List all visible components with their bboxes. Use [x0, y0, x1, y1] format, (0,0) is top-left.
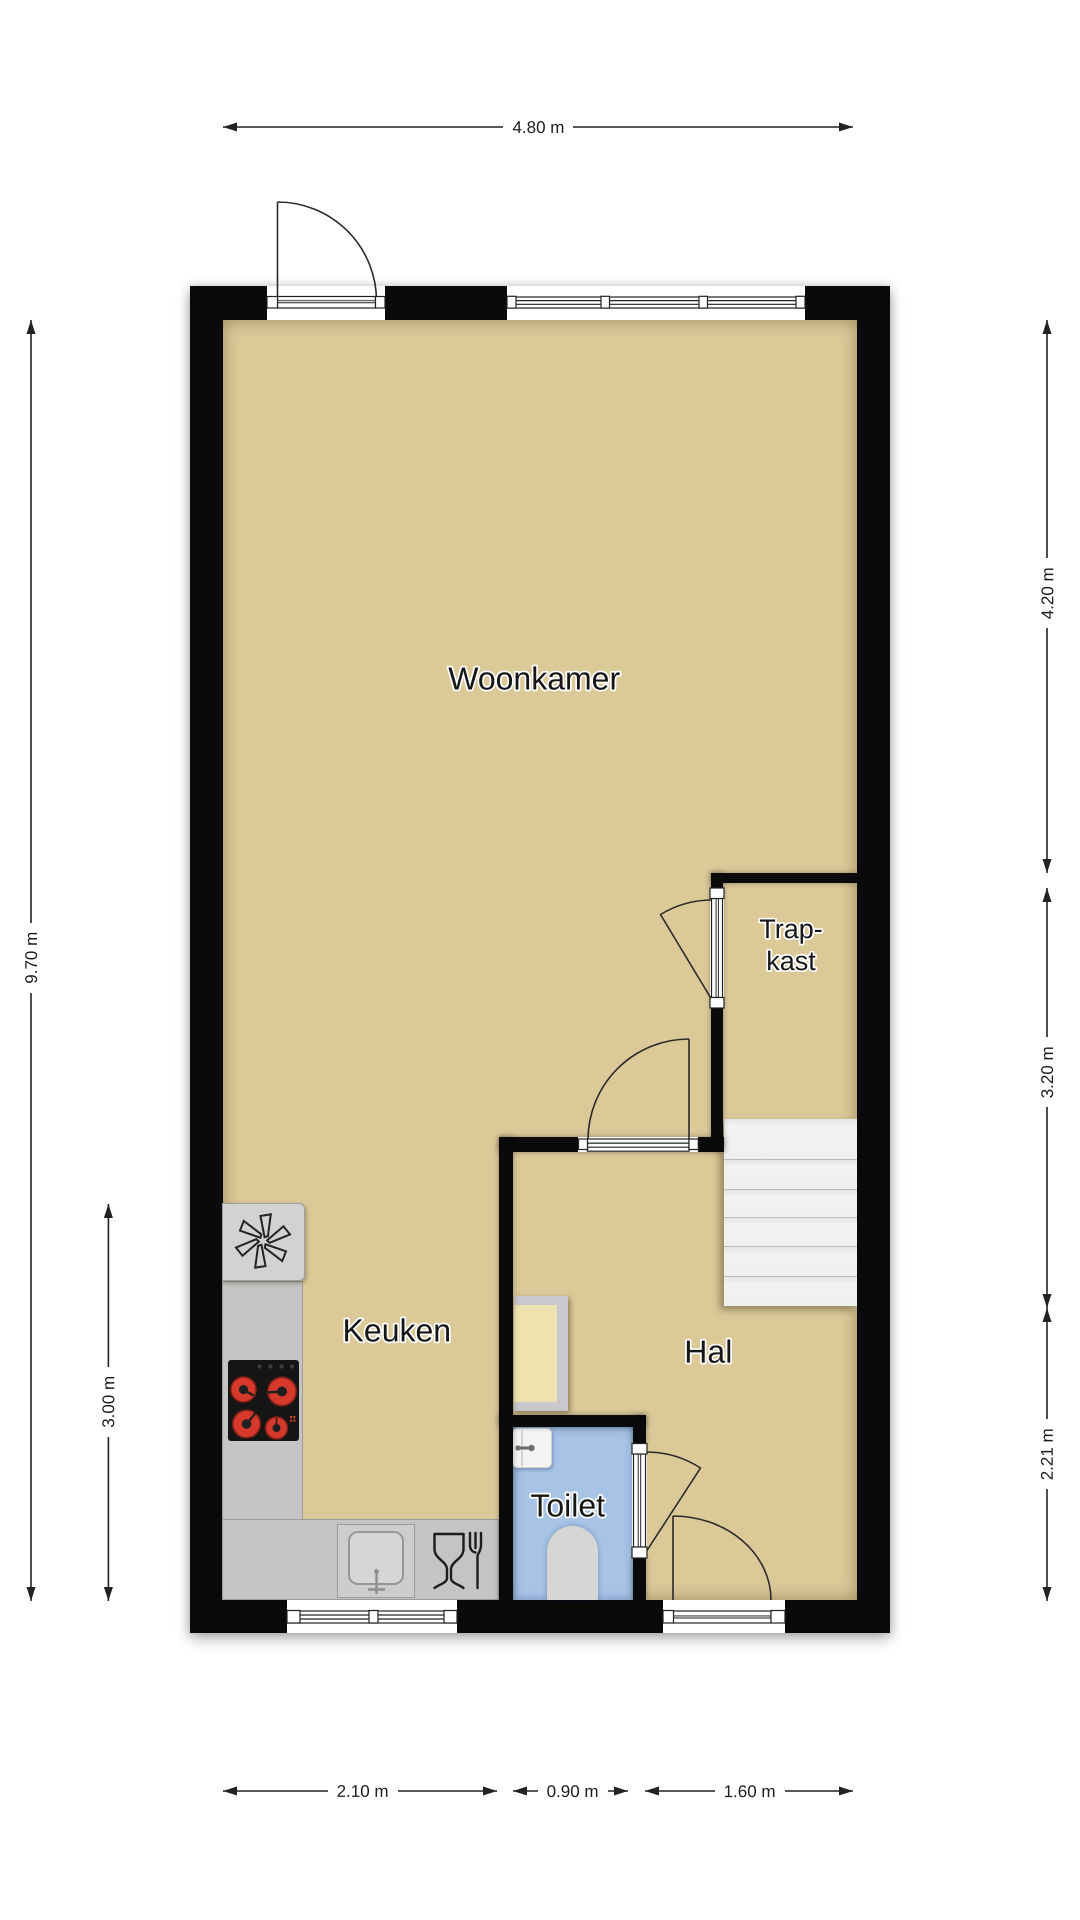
svg-text:3.00 m: 3.00 m [99, 1376, 118, 1428]
svg-text:1.60 m: 1.60 m [724, 1782, 776, 1801]
svg-text:Woonkamer: Woonkamer [448, 660, 620, 696]
svg-text:3.20 m: 3.20 m [1038, 1046, 1057, 1098]
svg-text:2.10 m: 2.10 m [337, 1782, 389, 1801]
svg-text:9.70 m: 9.70 m [22, 932, 41, 984]
svg-text:2.21 m: 2.21 m [1038, 1428, 1057, 1480]
svg-text:Keuken: Keuken [343, 1312, 452, 1348]
svg-text:kast: kast [766, 946, 816, 976]
svg-text:Toilet: Toilet [530, 1487, 605, 1523]
svg-text:Trap-: Trap- [759, 914, 823, 944]
svg-text:0.90 m: 0.90 m [547, 1782, 599, 1801]
svg-text:Hal: Hal [684, 1334, 732, 1370]
svg-text:4.80 m: 4.80 m [512, 118, 564, 137]
svg-text:4.20 m: 4.20 m [1038, 567, 1057, 619]
